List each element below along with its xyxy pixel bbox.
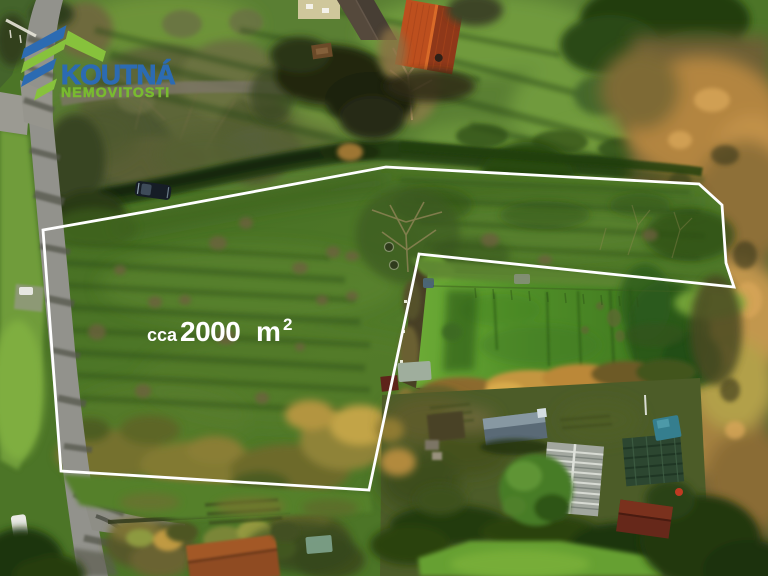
svg-text:2: 2	[283, 315, 292, 334]
svg-text:NEMOVITOSTI: NEMOVITOSTI	[61, 84, 170, 100]
svg-text:m: m	[256, 316, 281, 347]
svg-text:cca: cca	[147, 325, 178, 345]
svg-text:2000: 2000	[180, 316, 240, 347]
